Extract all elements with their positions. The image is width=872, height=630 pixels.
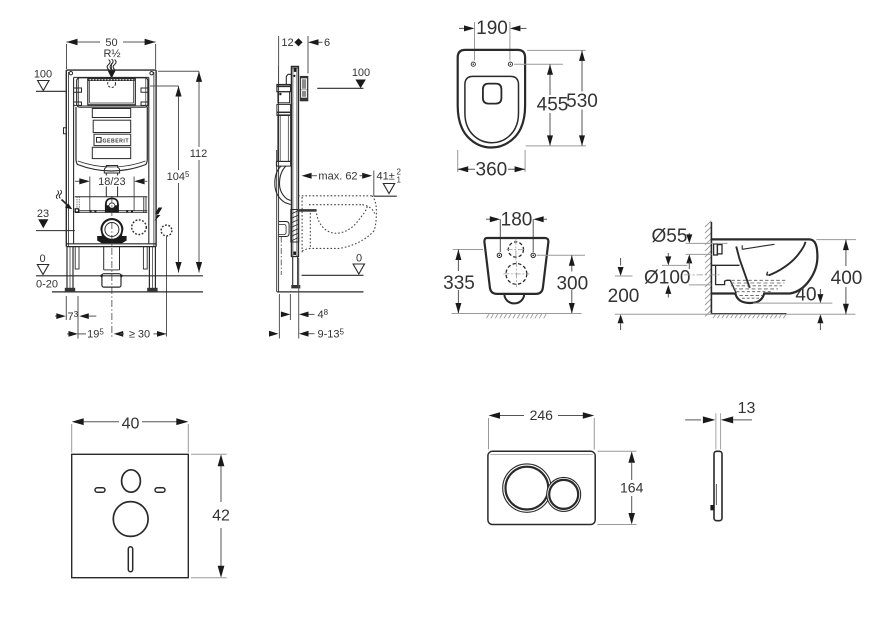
svg-text:200: 200 xyxy=(608,286,640,307)
svg-text:530: 530 xyxy=(566,91,598,112)
svg-text:23: 23 xyxy=(37,208,49,220)
svg-text:455: 455 xyxy=(537,95,569,116)
svg-text:246: 246 xyxy=(530,407,554,423)
svg-text:12: 12 xyxy=(281,37,293,49)
svg-text:1: 1 xyxy=(397,176,402,185)
svg-text:100: 100 xyxy=(352,67,370,79)
svg-text:13: 13 xyxy=(738,400,756,417)
svg-text:190: 190 xyxy=(476,18,508,39)
svg-text:40: 40 xyxy=(795,285,816,306)
svg-text:360: 360 xyxy=(476,160,508,181)
svg-text:≥ 30: ≥ 30 xyxy=(129,329,150,341)
svg-text:0-20: 0-20 xyxy=(36,279,58,291)
svg-text:6: 6 xyxy=(324,37,330,49)
svg-text:400: 400 xyxy=(831,268,863,289)
svg-text:42: 42 xyxy=(212,508,230,525)
svg-text:335: 335 xyxy=(443,273,475,294)
svg-text:18/23: 18/23 xyxy=(98,176,126,188)
svg-text:0: 0 xyxy=(39,253,45,265)
svg-text:100: 100 xyxy=(34,69,52,81)
svg-text:max. 62: max. 62 xyxy=(318,171,357,183)
svg-text:Ø100: Ø100 xyxy=(644,267,690,288)
svg-text:112: 112 xyxy=(190,148,208,160)
svg-text:40: 40 xyxy=(122,416,140,433)
svg-text:GEBERIT: GEBERIT xyxy=(103,138,130,144)
svg-text:180: 180 xyxy=(501,210,533,231)
svg-text:Ø55: Ø55 xyxy=(652,226,688,247)
svg-text:300: 300 xyxy=(556,273,588,294)
svg-text:0: 0 xyxy=(356,253,362,265)
svg-text:41±: 41± xyxy=(377,171,395,183)
svg-text:164: 164 xyxy=(620,480,644,496)
svg-text:R½: R½ xyxy=(103,48,120,60)
svg-text:50: 50 xyxy=(105,37,117,49)
